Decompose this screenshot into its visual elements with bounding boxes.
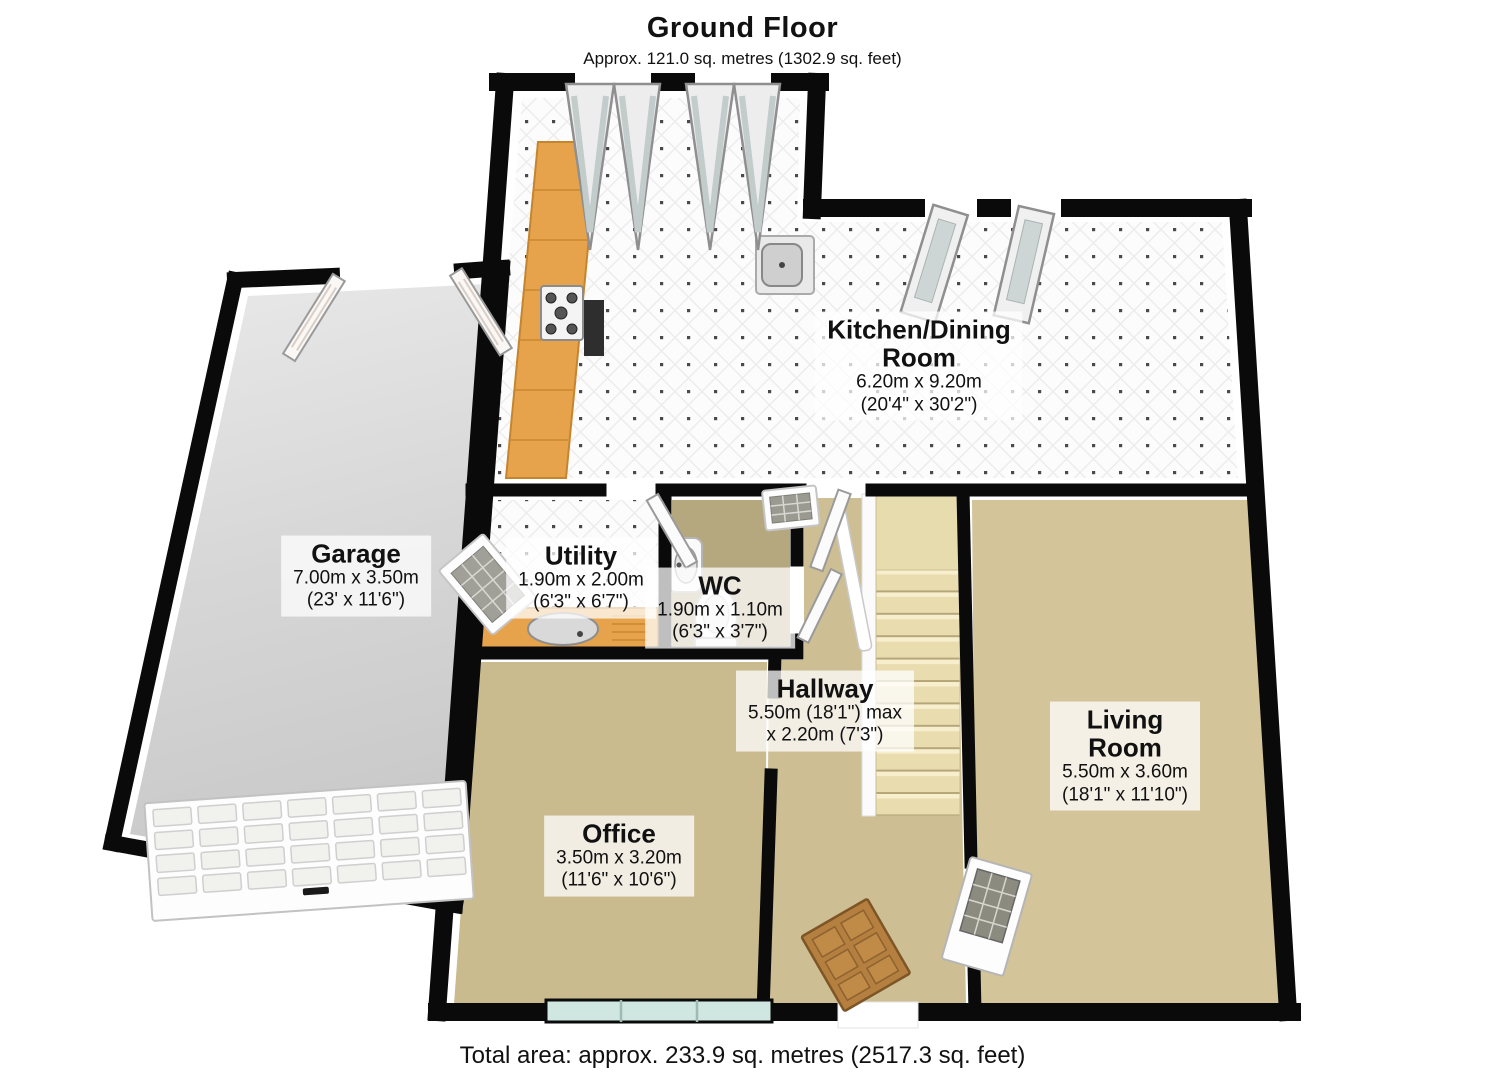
plan-header: Ground Floor Approx. 121.0 sq. metres (1… (0, 12, 1485, 69)
room-name: Kitchen/Dining (827, 316, 1010, 344)
room-label-wc: WC 1.90m x 1.10m (6'3" x 3'7") (645, 568, 795, 649)
room-name: Room (1062, 734, 1188, 762)
room-dimensions-metric: 1.90m x 1.10m (657, 600, 783, 622)
room-dimensions-metric: 5.50m x 3.60m (1062, 762, 1188, 784)
room-name: Living (1062, 706, 1188, 734)
room-label-office: Office 3.50m x 3.20m (11'6" x 10'6") (544, 816, 694, 897)
room-name: Hallway (748, 675, 902, 703)
room-dimensions-metric: 7.00m x 3.50m (293, 568, 419, 590)
total-area-caption: Total area: approx. 233.9 sq. metres (25… (0, 1042, 1485, 1070)
cooktop-icon (541, 286, 583, 340)
floorplan-page: Ground Floor Approx. 121.0 sq. metres (1… (0, 0, 1485, 1080)
page-title: Ground Floor (0, 12, 1485, 45)
room-name: Room (827, 344, 1010, 372)
room-dimensions-imperial: (6'3" x 6'7") (518, 592, 644, 614)
page-subtitle: Approx. 121.0 sq. metres (1302.9 sq. fee… (0, 49, 1485, 69)
room-name: WC (657, 572, 783, 600)
room-dimensions-metric: 5.50m (18'1") max (748, 703, 902, 725)
room-dimensions-imperial: x 2.20m (7'3") (748, 725, 902, 747)
room-label-living-room: Living Room 5.50m x 3.60m (18'1" x 11'10… (1050, 702, 1200, 811)
room-dimensions-imperial: (18'1" x 11'10") (1062, 784, 1188, 806)
room-dimensions-imperial: (20'4" x 30'2") (827, 394, 1010, 416)
room-dimensions-imperial: (6'3" x 3'7") (657, 622, 783, 644)
kitchen-sink-icon (756, 236, 814, 294)
oven-icon (584, 300, 604, 356)
office-window (546, 1000, 772, 1022)
room-name: Garage (293, 540, 419, 568)
room-label-utility: Utility 1.90m x 2.00m (6'3" x 6'7") (506, 538, 656, 619)
room-dimensions-metric: 3.50m x 3.20m (556, 848, 682, 870)
room-name: Office (556, 820, 682, 848)
room-dimensions-metric: 6.20m x 9.20m (827, 372, 1010, 394)
garage-door (144, 781, 473, 921)
room-dimensions-metric: 1.90m x 2.00m (518, 570, 644, 592)
room-dimensions-imperial: (11'6" x 10'6") (556, 870, 682, 892)
radiator-hallway (762, 485, 820, 530)
room-label-kitchen-dining: Kitchen/Dining Room 6.20m x 9.20m (20'4"… (815, 312, 1022, 421)
floorplan-drawing (0, 0, 1485, 1080)
room-dimensions-imperial: (23' x 11'6") (293, 590, 419, 612)
room-label-hallway: Hallway 5.50m (18'1") max x 2.20m (7'3") (736, 671, 914, 752)
room-label-garage: Garage 7.00m x 3.50m (23' x 11'6") (281, 536, 431, 617)
room-name: Utility (518, 542, 644, 570)
